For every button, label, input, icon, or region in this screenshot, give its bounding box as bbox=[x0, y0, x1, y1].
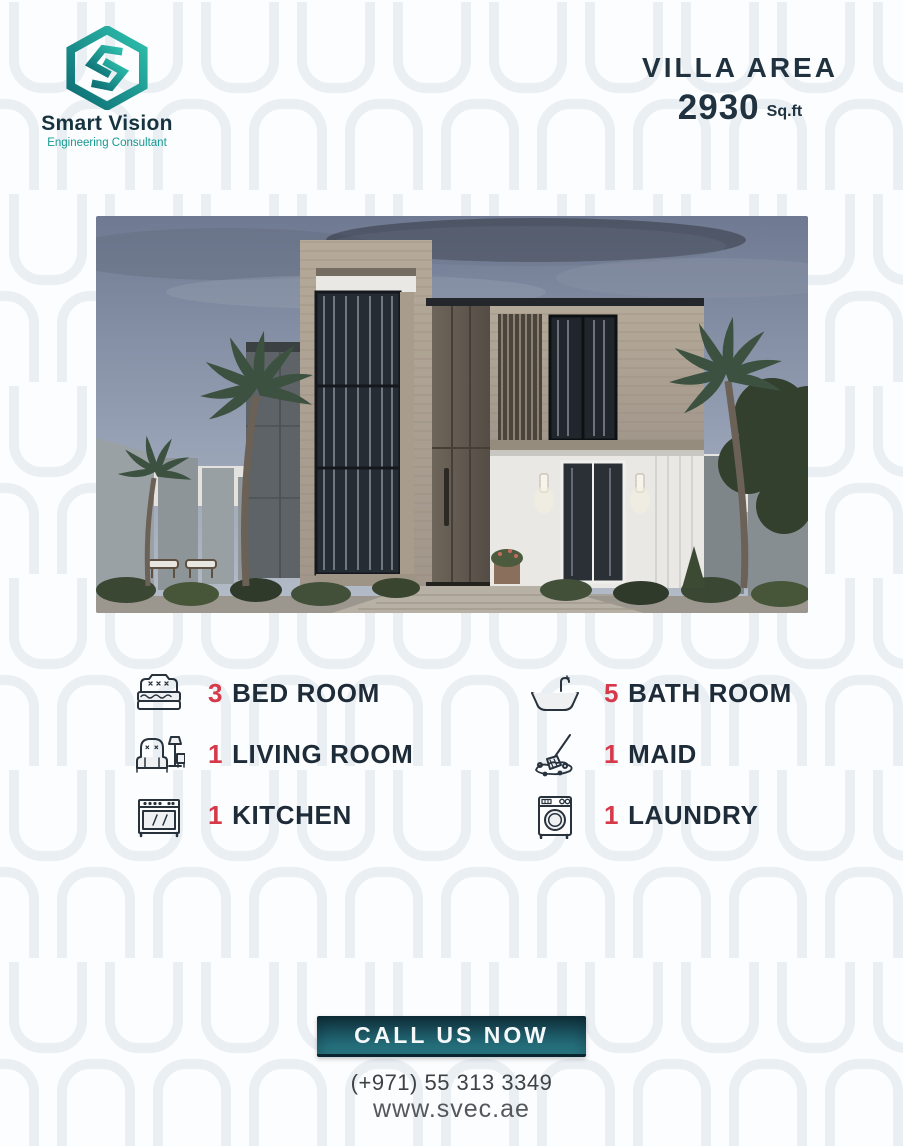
villa-area-label: VILLA AREA bbox=[605, 52, 875, 84]
stove-icon bbox=[130, 791, 188, 841]
sofa-icon bbox=[130, 730, 188, 780]
feature-label: LIVING ROOM bbox=[232, 739, 413, 769]
feature-maid: 1MAID bbox=[452, 724, 808, 785]
feature-count: 3 bbox=[208, 678, 223, 708]
feature-label: BED ROOM bbox=[232, 678, 380, 708]
bed-icon bbox=[130, 669, 188, 719]
feature-kitchen: 1KITCHEN bbox=[96, 785, 452, 846]
feature-count: 1 bbox=[208, 800, 223, 830]
hexagon-s-logo-icon bbox=[59, 26, 155, 110]
villa-area-value: 2930 bbox=[678, 88, 760, 127]
brand-name: Smart Vision bbox=[38, 112, 176, 136]
feature-laundry: 1LAUNDRY bbox=[452, 785, 808, 846]
phone-number[interactable]: (+971) 55 313 3349 bbox=[0, 1070, 903, 1096]
feature-label: LAUNDRY bbox=[628, 800, 758, 830]
villa-area-block: VILLA AREA 2930Sq.ft bbox=[605, 52, 875, 128]
feature-label: MAID bbox=[628, 739, 697, 769]
villa-flyer: Smart Vision Engineering Consultant VILL… bbox=[0, 0, 903, 1146]
brand-tagline: Engineering Consultant bbox=[38, 137, 176, 149]
feature-living-room: 1LIVING ROOM bbox=[96, 724, 452, 785]
feature-list: 3BED ROOM 5BATH ROOM bbox=[96, 663, 808, 846]
call-us-now-label: CALL US NOW bbox=[354, 1022, 549, 1049]
feature-label: KITCHEN bbox=[232, 800, 352, 830]
feature-count: 1 bbox=[208, 739, 223, 769]
bathtub-icon bbox=[526, 669, 584, 719]
villa-photo bbox=[96, 216, 808, 613]
feature-count: 1 bbox=[604, 800, 619, 830]
call-us-now-button[interactable]: CALL US NOW bbox=[317, 1016, 586, 1057]
feature-bed-room: 3BED ROOM bbox=[96, 663, 452, 724]
website-link[interactable]: www.svec.ae bbox=[0, 1095, 903, 1124]
mop-icon bbox=[526, 730, 584, 780]
feature-label: BATH ROOM bbox=[628, 678, 792, 708]
brand-block: Smart Vision Engineering Consultant bbox=[38, 26, 176, 149]
feature-count: 5 bbox=[604, 678, 619, 708]
washing-machine-icon bbox=[526, 791, 584, 841]
feature-bath-room: 5BATH ROOM bbox=[452, 663, 808, 724]
feature-count: 1 bbox=[604, 739, 619, 769]
villa-area-unit: Sq.ft bbox=[767, 103, 803, 120]
